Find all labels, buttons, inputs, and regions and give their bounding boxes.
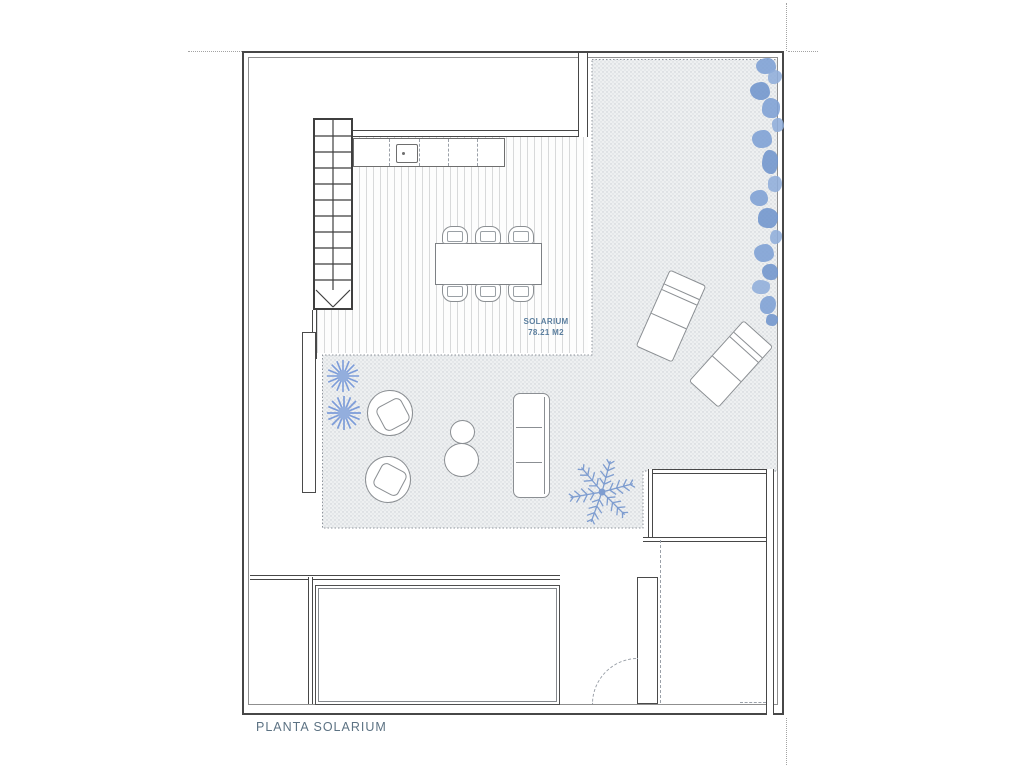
sink-drain: [402, 152, 405, 155]
hedge-blob: [768, 176, 782, 192]
counter-divider: [419, 139, 420, 166]
dining-chair: [475, 226, 501, 244]
threshold-line: [740, 702, 766, 703]
dining-chair: [508, 226, 534, 244]
door-jamb-wall: [637, 577, 658, 704]
hedge-blob: [762, 150, 778, 174]
right-corridor-wall: [766, 469, 774, 715]
hedge-blob: [752, 130, 772, 148]
hedge-blob: [762, 98, 780, 118]
wall-opening-line: [660, 540, 661, 703]
pool-area-left-wall: [308, 577, 313, 704]
upper-room-bottom-wall: [353, 130, 588, 137]
tub-armchair: [367, 390, 413, 436]
chair-seat: [480, 231, 496, 242]
reference-line-top-left: [188, 51, 242, 52]
dining-chair: [508, 284, 534, 302]
plan-title: PLANTA SOLARIUM: [256, 720, 387, 734]
hedge-blob: [758, 208, 778, 228]
pool-inner-edge: [318, 588, 557, 702]
counter-divider: [448, 139, 449, 166]
room-label-name: SOLARIUM: [500, 317, 592, 328]
hedge-blob: [768, 70, 782, 84]
chair-seat: [447, 231, 463, 242]
staircase: [313, 118, 353, 310]
hedge-blob: [762, 264, 778, 280]
stair-treads: [315, 120, 351, 308]
outdoor-kitchen-counter: [353, 138, 505, 167]
palm-plant-icon: [563, 453, 641, 531]
lower-room-left-wall: [648, 469, 653, 539]
hedge-blob: [770, 230, 782, 244]
sofa-cushion-divider: [516, 462, 542, 463]
shrub-plant-icon: [326, 395, 362, 431]
sofa-back-line: [544, 397, 545, 494]
side-table-small: [450, 420, 475, 444]
room-label-area: 78.21 M2: [500, 328, 592, 339]
pool: [315, 585, 560, 705]
hedge-blob: [760, 296, 776, 314]
sink: [396, 144, 418, 163]
dining-chair: [442, 284, 468, 302]
lower-room-top-wall: [648, 469, 774, 474]
hedge-blob: [750, 82, 770, 100]
armchair-cushion: [371, 461, 408, 498]
armchair-cushion: [374, 396, 411, 433]
dining-chair: [442, 226, 468, 244]
sofa-3-seat: [513, 393, 550, 498]
reference-line-right-upper: [786, 3, 787, 51]
side-wall-pier: [302, 332, 316, 493]
chair-seat: [480, 286, 496, 297]
chair-seat: [513, 286, 529, 297]
side-table-large: [444, 443, 479, 477]
pool-area-top-wall: [250, 575, 560, 580]
hedge-blob: [752, 280, 770, 294]
upper-room-right-wall: [578, 53, 588, 137]
dining-table: [435, 243, 542, 285]
shrub-plant-icon: [326, 359, 360, 393]
chair-seat: [447, 286, 463, 297]
hedge-blob: [754, 244, 774, 262]
hedge-strip: [744, 58, 784, 326]
lounger-divider: [712, 356, 741, 382]
lower-room-mid-wall: [643, 537, 774, 542]
chair-seat: [513, 231, 529, 242]
tub-armchair: [365, 456, 411, 503]
counter-divider: [389, 139, 390, 166]
hedge-blob: [766, 314, 778, 326]
counter-divider: [477, 139, 478, 166]
room-area-label: SOLARIUM 78.21 M2: [500, 317, 592, 339]
hedge-blob: [750, 190, 768, 206]
hedge-blob: [772, 118, 784, 132]
reference-line-top-right: [788, 51, 818, 52]
dining-chair: [475, 284, 501, 302]
floor-plan-canvas: SOLARIUM 78.21 M2 PLANTA SOLARIUM: [0, 0, 1024, 768]
lounger-divider: [651, 313, 686, 329]
reference-line-right-lower: [786, 718, 787, 765]
sofa-cushion-divider: [516, 427, 542, 428]
